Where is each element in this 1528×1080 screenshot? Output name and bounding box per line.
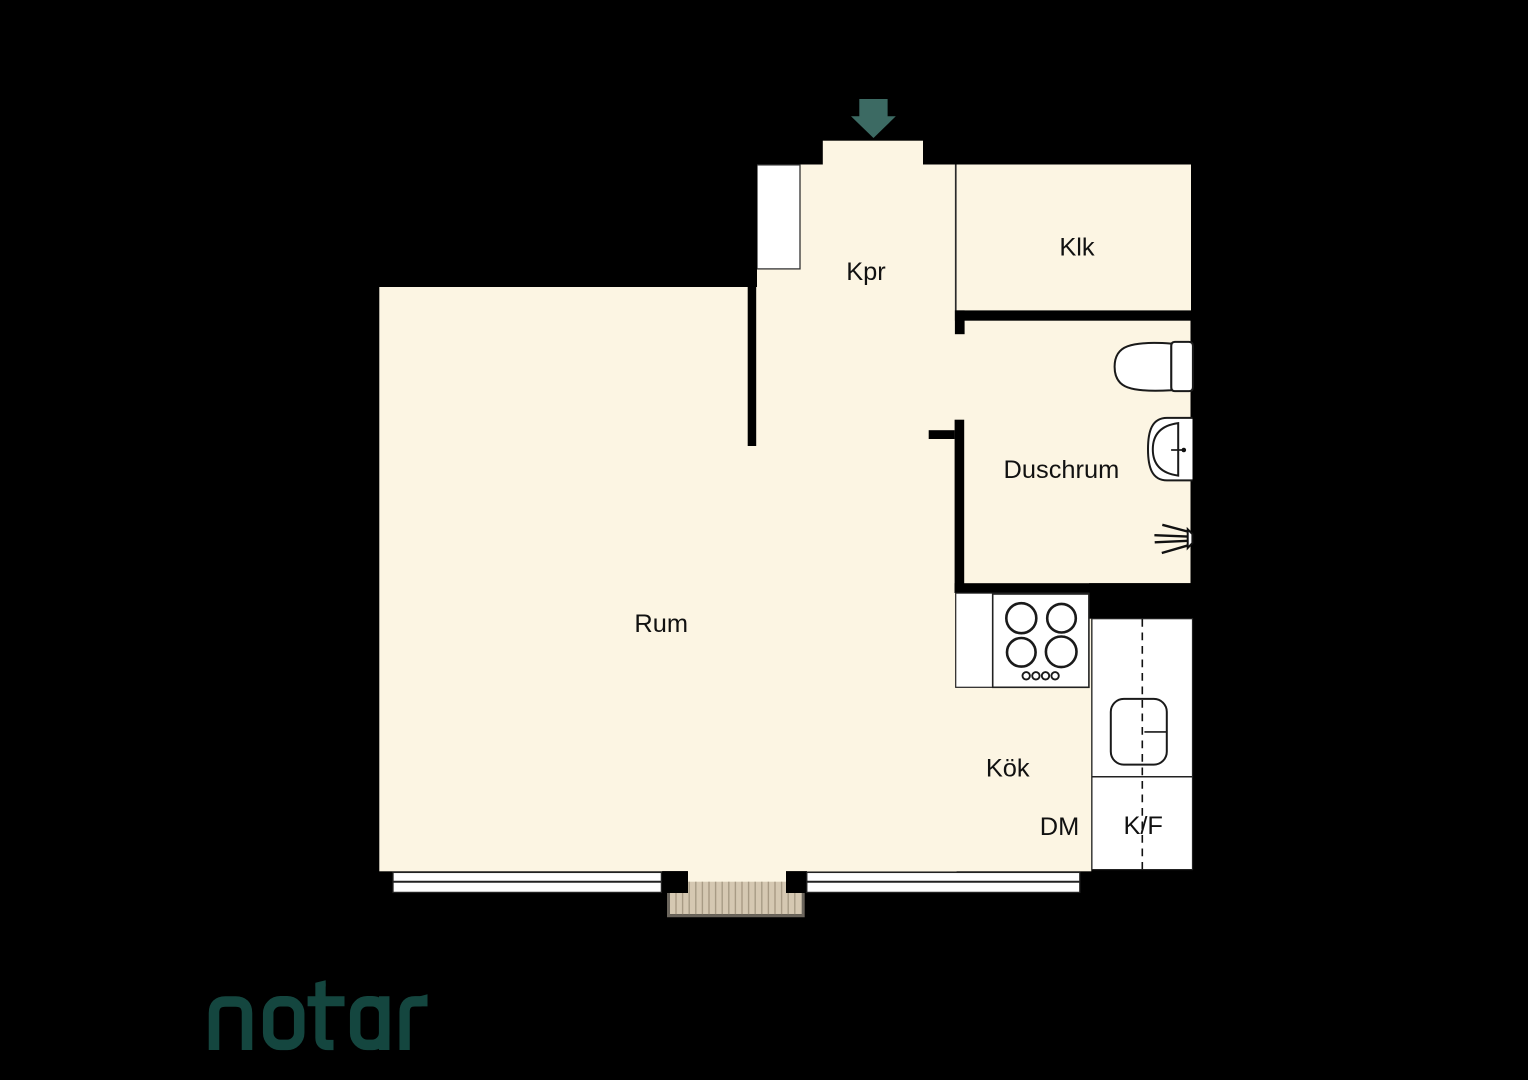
- svg-text:Rum: Rum: [634, 610, 688, 638]
- svg-text:Klk: Klk: [1059, 234, 1095, 262]
- svg-text:Duschrum: Duschrum: [1004, 456, 1120, 484]
- svg-text:Kök: Kök: [986, 755, 1030, 783]
- svg-text:DM: DM: [1040, 813, 1080, 841]
- svg-text:Kpr: Kpr: [846, 258, 886, 286]
- svg-text:K/F: K/F: [1123, 812, 1163, 840]
